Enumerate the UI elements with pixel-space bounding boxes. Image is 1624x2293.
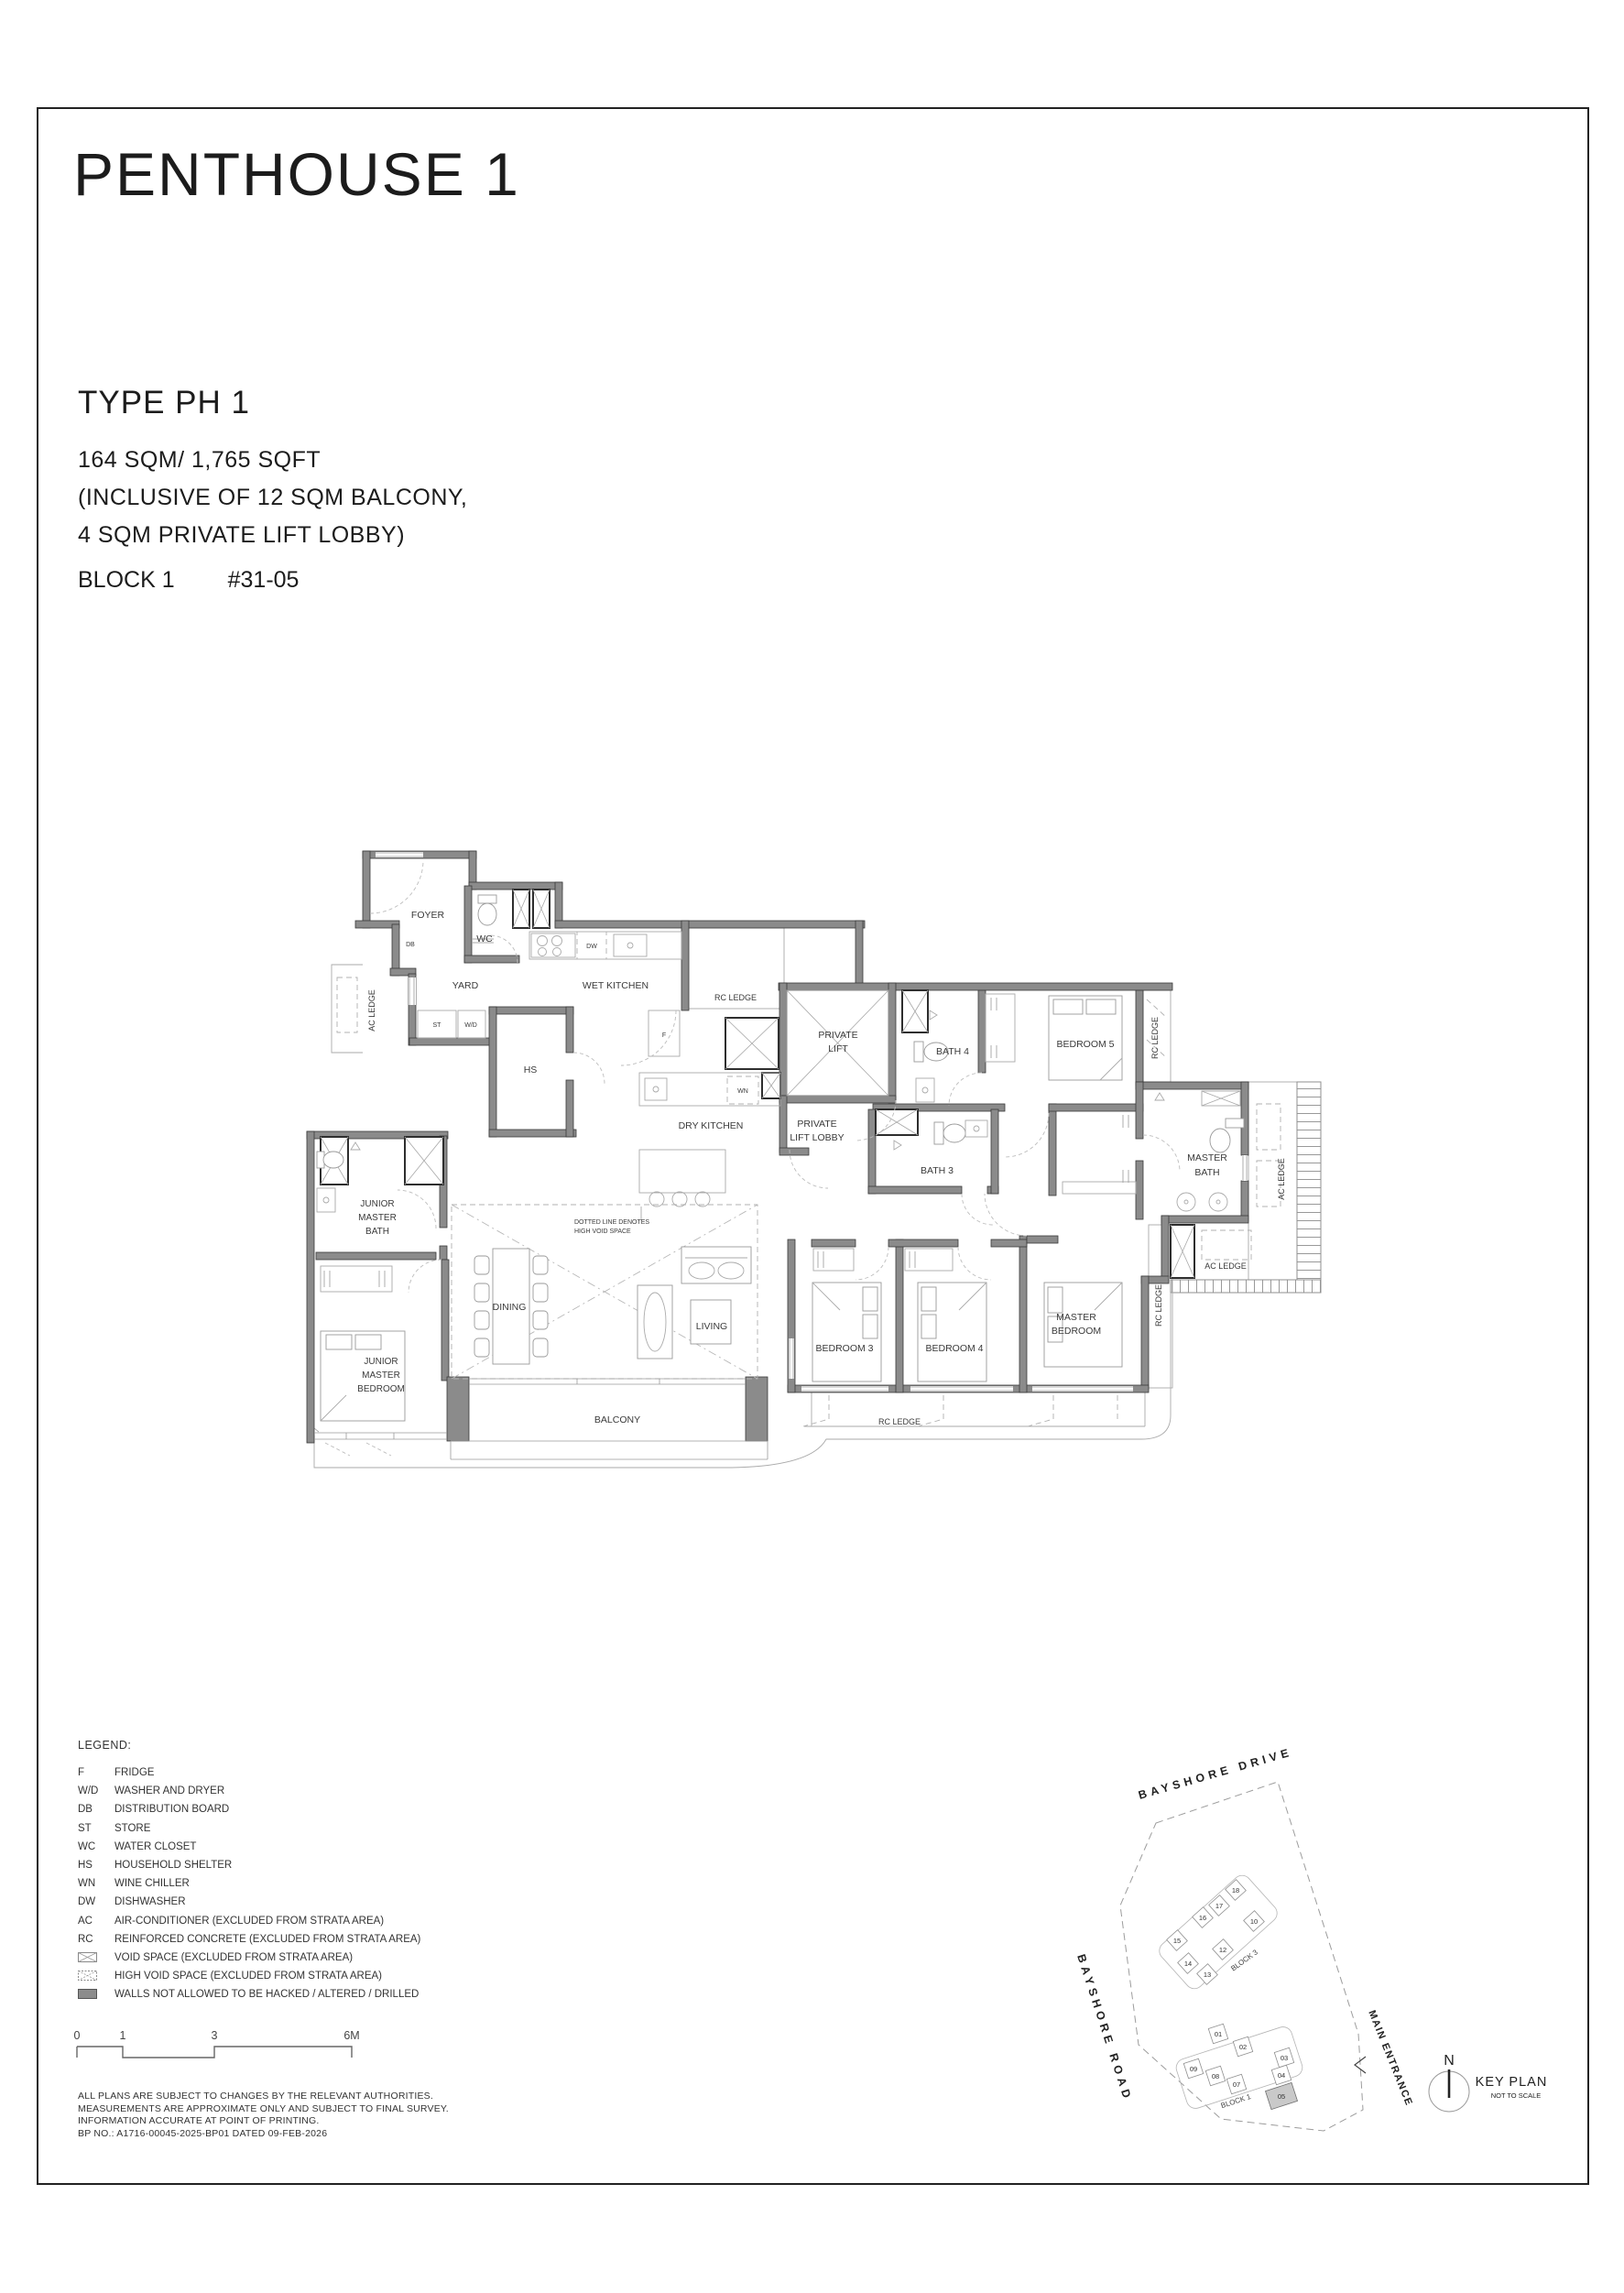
legend-item: DWDISHWASHER (78, 1893, 420, 1911)
room-label-dining: DINING (493, 1302, 527, 1313)
room-label-living: LIVING (696, 1321, 727, 1332)
bed-master (1044, 1283, 1122, 1367)
legend-heading: LEGEND: (78, 1739, 420, 1752)
legend-item: WNWINE CHILLER (78, 1874, 420, 1893)
room-label-foyer: FOYER (411, 910, 445, 921)
legend-desc: VOID SPACE (EXCLUDED FROM STRATA AREA) (114, 1949, 353, 1967)
block-number: BLOCK 1 (78, 567, 175, 593)
legend-item: HIGH VOID SPACE (EXCLUDED FROM STRATA AR… (78, 1967, 420, 1985)
block-label: BLOCK 3 (1229, 1948, 1259, 1972)
room-label-rc-ledge: RC LEDGE (714, 993, 757, 1002)
disclaimer: ALL PLANS ARE SUBJECT TO CHANGES BY THE … (78, 2091, 449, 2140)
key-plan-unit-08: 08 (1205, 2066, 1225, 2085)
key-plan-unit-number: 04 (1278, 2071, 1285, 2080)
room-label-bath-3: BATH 3 (921, 1165, 954, 1176)
legend-item: STSTORE (78, 1819, 420, 1838)
room-label-balcony: BALCONY (594, 1414, 640, 1425)
unit-address: BLOCK 1#31-05 (78, 567, 467, 594)
room-label-rc-ledge: RC LEDGE (1150, 1017, 1160, 1059)
key-plan-unit-number: 18 (1232, 1886, 1239, 1894)
room-label-ac-ledge: AC LEDGE (1277, 1158, 1286, 1200)
legend-desc: HIGH VOID SPACE (EXCLUDED FROM STRATA AR… (114, 1967, 382, 1985)
key-plan-unit-07: 07 (1226, 2074, 1246, 2093)
unit-area: 164 SQM/ 1,765 SQFT (78, 442, 467, 479)
legend-item: ACAIR-CONDITIONER (EXCLUDED FROM STRATA … (78, 1912, 420, 1930)
legend-desc: FRIDGE (114, 1763, 154, 1782)
room-label-bath-4: BATH 4 (936, 1046, 969, 1057)
legend-desc: WATER CLOSET (114, 1838, 196, 1856)
key-plan-unit-number: 09 (1190, 2065, 1197, 2073)
legend-item: VOID SPACE (EXCLUDED FROM STRATA AREA) (78, 1949, 420, 1967)
unit-type: TYPE PH 1 (78, 385, 467, 421)
road-label-bayshore-drive: BAYSHORE DRIVE (1137, 1745, 1293, 1802)
key-plan-unit-02: 02 (1233, 2036, 1252, 2056)
room-label-ac-ledge: AC LEDGE (367, 989, 376, 1032)
key-plan-unit-14: 14 (1178, 1953, 1199, 1974)
unit-number: #31-05 (228, 567, 300, 593)
legend-abbr: W/D (78, 1782, 114, 1800)
legend-abbr: F (78, 1763, 114, 1782)
legend: LEGEND: FFRIDGEW/DWASHER AND DRYERDBDIST… (78, 1739, 420, 2004)
key-plan-units: 18171615141312100102030405070809 (1167, 1880, 1298, 2110)
room-label-private: PRIVATELIFT LOBBY (790, 1119, 844, 1143)
legend-abbr: WN (78, 1874, 114, 1893)
key-plan-unit-number: 16 (1199, 1914, 1206, 1922)
disclaimer-line: MEASUREMENTS ARE APPROXIMATE ONLY AND SU… (78, 2103, 449, 2116)
legend-item: W/DWASHER AND DRYER (78, 1782, 420, 1800)
legend-rows: FFRIDGEW/DWASHER AND DRYERDBDISTRIBUTION… (78, 1763, 420, 2004)
page-title: PENTHOUSE 1 (73, 139, 520, 209)
key-plan-unit-number: 10 (1250, 1917, 1258, 1926)
legend-desc: WALLS NOT ALLOWED TO BE HACKED / ALTERED… (114, 1985, 419, 2004)
key-plan-unit-number: 08 (1212, 2072, 1219, 2080)
key-plan: 18171615141312100102030405070809 BAYSHOR… (1053, 1731, 1592, 2162)
road-label-bayshore-road: BAYSHORE ROAD (1074, 1952, 1134, 2103)
key-plan-unit-13: 13 (1197, 1964, 1218, 1985)
legend-item: FFRIDGE (78, 1763, 420, 1782)
unit-area-note-2: 4 SQM PRIVATE LIFT LOBBY) (78, 517, 467, 554)
scale-label: 3 (212, 2029, 218, 2042)
legend-desc: STORE (114, 1819, 150, 1838)
road-label-main-entrance: MAIN ENTRANCE (1366, 2009, 1414, 2108)
bed-bedroom4 (918, 1283, 986, 1381)
scale-label: 6M (343, 2029, 359, 2042)
key-plan-unit-04: 04 (1271, 2065, 1291, 2084)
legend-abbr: DW (78, 1893, 114, 1911)
room-label-junior: JUNIORMASTERBATH (358, 1199, 397, 1237)
legend-desc: DISHWASHER (114, 1893, 186, 1911)
svg-text:KEY PLAN: KEY PLAN (1476, 2075, 1548, 2090)
key-plan-unit-number: 03 (1281, 2054, 1288, 2062)
key-plan-unit-number: 01 (1215, 2030, 1222, 2038)
key-plan-unit-18: 18 (1226, 1880, 1247, 1901)
unit-spec-block: TYPE PH 1 164 SQM/ 1,765 SQFT (INCLUSIVE… (78, 385, 467, 594)
unit-area-note-1: (INCLUSIVE OF 12 SQM BALCONY, (78, 479, 467, 517)
room-label-bedroom-4: BEDROOM 4 (925, 1343, 983, 1354)
room-label-db: DB (406, 942, 415, 948)
key-plan-unit-number: 05 (1278, 2092, 1285, 2101)
key-plan-unit-05: 05 (1265, 2082, 1297, 2109)
key-plan-unit-number: 15 (1173, 1937, 1181, 1945)
key-plan-unit-number: 13 (1204, 1971, 1211, 1979)
floor-plan-sheet: PENTHOUSE 1 TYPE PH 1 164 SQM/ 1,765 SQF… (0, 0, 1624, 2293)
room-label-master: MASTERBATH (1187, 1152, 1227, 1178)
legend-abbr: AC (78, 1912, 114, 1930)
key-plan-texts: BAYSHORE DRIVEBAYSHORE ROADMAIN ENTRANCE… (1074, 1745, 1414, 2110)
highvoid-icon (78, 1971, 97, 1981)
windows (314, 852, 1248, 1459)
legend-desc: HOUSEHOLD SHELTER (114, 1856, 232, 1874)
legend-item: WCWATER CLOSET (78, 1838, 420, 1856)
key-plan-unit-17: 17 (1209, 1895, 1230, 1916)
disclaimer-line: INFORMATION ACCURATE AT POINT OF PRINTIN… (78, 2115, 449, 2128)
key-plan-unit-number: 12 (1219, 1946, 1226, 1954)
room-label-dw: DW (586, 944, 597, 950)
svg-text:NOT TO SCALE: NOT TO SCALE (1491, 2091, 1542, 2100)
room-label-f: F (662, 1032, 666, 1039)
key-plan-unit-number: 02 (1239, 2043, 1247, 2051)
disclaimer-line: BP NO.: A1716-00045-2025-BP01 DATED 09-F… (78, 2128, 449, 2141)
svg-text:N: N (1444, 2053, 1455, 2069)
room-label-bedroom-3: BEDROOM 3 (815, 1343, 873, 1354)
legend-abbr: WC (78, 1838, 114, 1856)
room-label-wc: WC (476, 934, 493, 944)
key-plan-unit-number: 07 (1233, 2080, 1240, 2089)
key-plan-unit-16: 16 (1193, 1907, 1214, 1928)
key-plan-unit-03: 03 (1274, 2047, 1293, 2067)
floor-plan-drawing: FOYERDBWCAC LEDGEYARDSTW/DHSWET KITCHEND… (302, 829, 1411, 1484)
room-label-ac-ledge: AC LEDGE (1204, 1261, 1247, 1271)
room-label-st: ST (433, 1022, 442, 1029)
legend-desc: DISTRIBUTION BOARD (114, 1800, 229, 1818)
room-label-bedroom-5: BEDROOM 5 (1056, 1039, 1114, 1050)
scale-label: 0 (74, 2029, 81, 2042)
key-plan-unit-number: 17 (1215, 1902, 1223, 1910)
bed-bedroom5 (1049, 996, 1122, 1080)
legend-item: HSHOUSEHOLD SHELTER (78, 1856, 420, 1874)
room-label-hs: HS (524, 1065, 538, 1076)
key-plan-unit-number: 14 (1184, 1960, 1192, 1968)
key-plan-unit-10: 10 (1244, 1911, 1265, 1932)
room-label-rc-ledge: RC LEDGE (878, 1417, 921, 1426)
key-plan-unit-01: 01 (1208, 2024, 1227, 2043)
disclaimer-line: ALL PLANS ARE SUBJECT TO CHANGES BY THE … (78, 2091, 449, 2103)
key-plan-unit-15: 15 (1167, 1930, 1188, 1951)
legend-desc: WASHER AND DRYER (114, 1782, 224, 1800)
fixtures (317, 895, 1244, 1421)
legend-desc: REINFORCED CONCRETE (EXCLUDED FROM STRAT… (114, 1930, 420, 1949)
legend-item: RCREINFORCED CONCRETE (EXCLUDED FROM STR… (78, 1930, 420, 1949)
bed-bedroom3 (812, 1283, 881, 1381)
room-label-wet-kitchen: WET KITCHEN (583, 980, 649, 991)
room-label-w-d: W/D (464, 1022, 477, 1029)
room-label-dotted-line-denotes: DOTTED LINE DENOTESHIGH VOID SPACE (574, 1219, 649, 1235)
room-label-junior: JUNIORMASTERBEDROOM (357, 1357, 405, 1394)
room-label-rc-ledge: RC LEDGE (1154, 1284, 1163, 1327)
key-plan-unit-12: 12 (1213, 1939, 1234, 1960)
legend-abbr: ST (78, 1819, 114, 1838)
legend-desc: WINE CHILLER (114, 1874, 190, 1893)
legend-item: DBDISTRIBUTION BOARD (78, 1800, 420, 1818)
legend-abbr: RC (78, 1930, 114, 1949)
legend-abbr: HS (78, 1856, 114, 1874)
scale-bar: 0136M (71, 2026, 383, 2067)
room-label-yard: YARD (452, 980, 479, 991)
legend-desc: AIR-CONDITIONER (EXCLUDED FROM STRATA AR… (114, 1912, 384, 1930)
key-plan-unit-09: 09 (1183, 2058, 1203, 2078)
legend-abbr: DB (78, 1800, 114, 1818)
wall-icon (78, 1989, 97, 1999)
void-icon (78, 1952, 97, 1962)
block-label: BLOCK 1 (1220, 2092, 1252, 2110)
room-label-wn: WN (737, 1088, 748, 1095)
legend-item: WALLS NOT ALLOWED TO BE HACKED / ALTERED… (78, 1985, 420, 2004)
north-compass-icon: N (1429, 2053, 1469, 2112)
room-label-dry-kitchen: DRY KITCHEN (679, 1120, 744, 1131)
scale-label: 1 (120, 2029, 126, 2042)
